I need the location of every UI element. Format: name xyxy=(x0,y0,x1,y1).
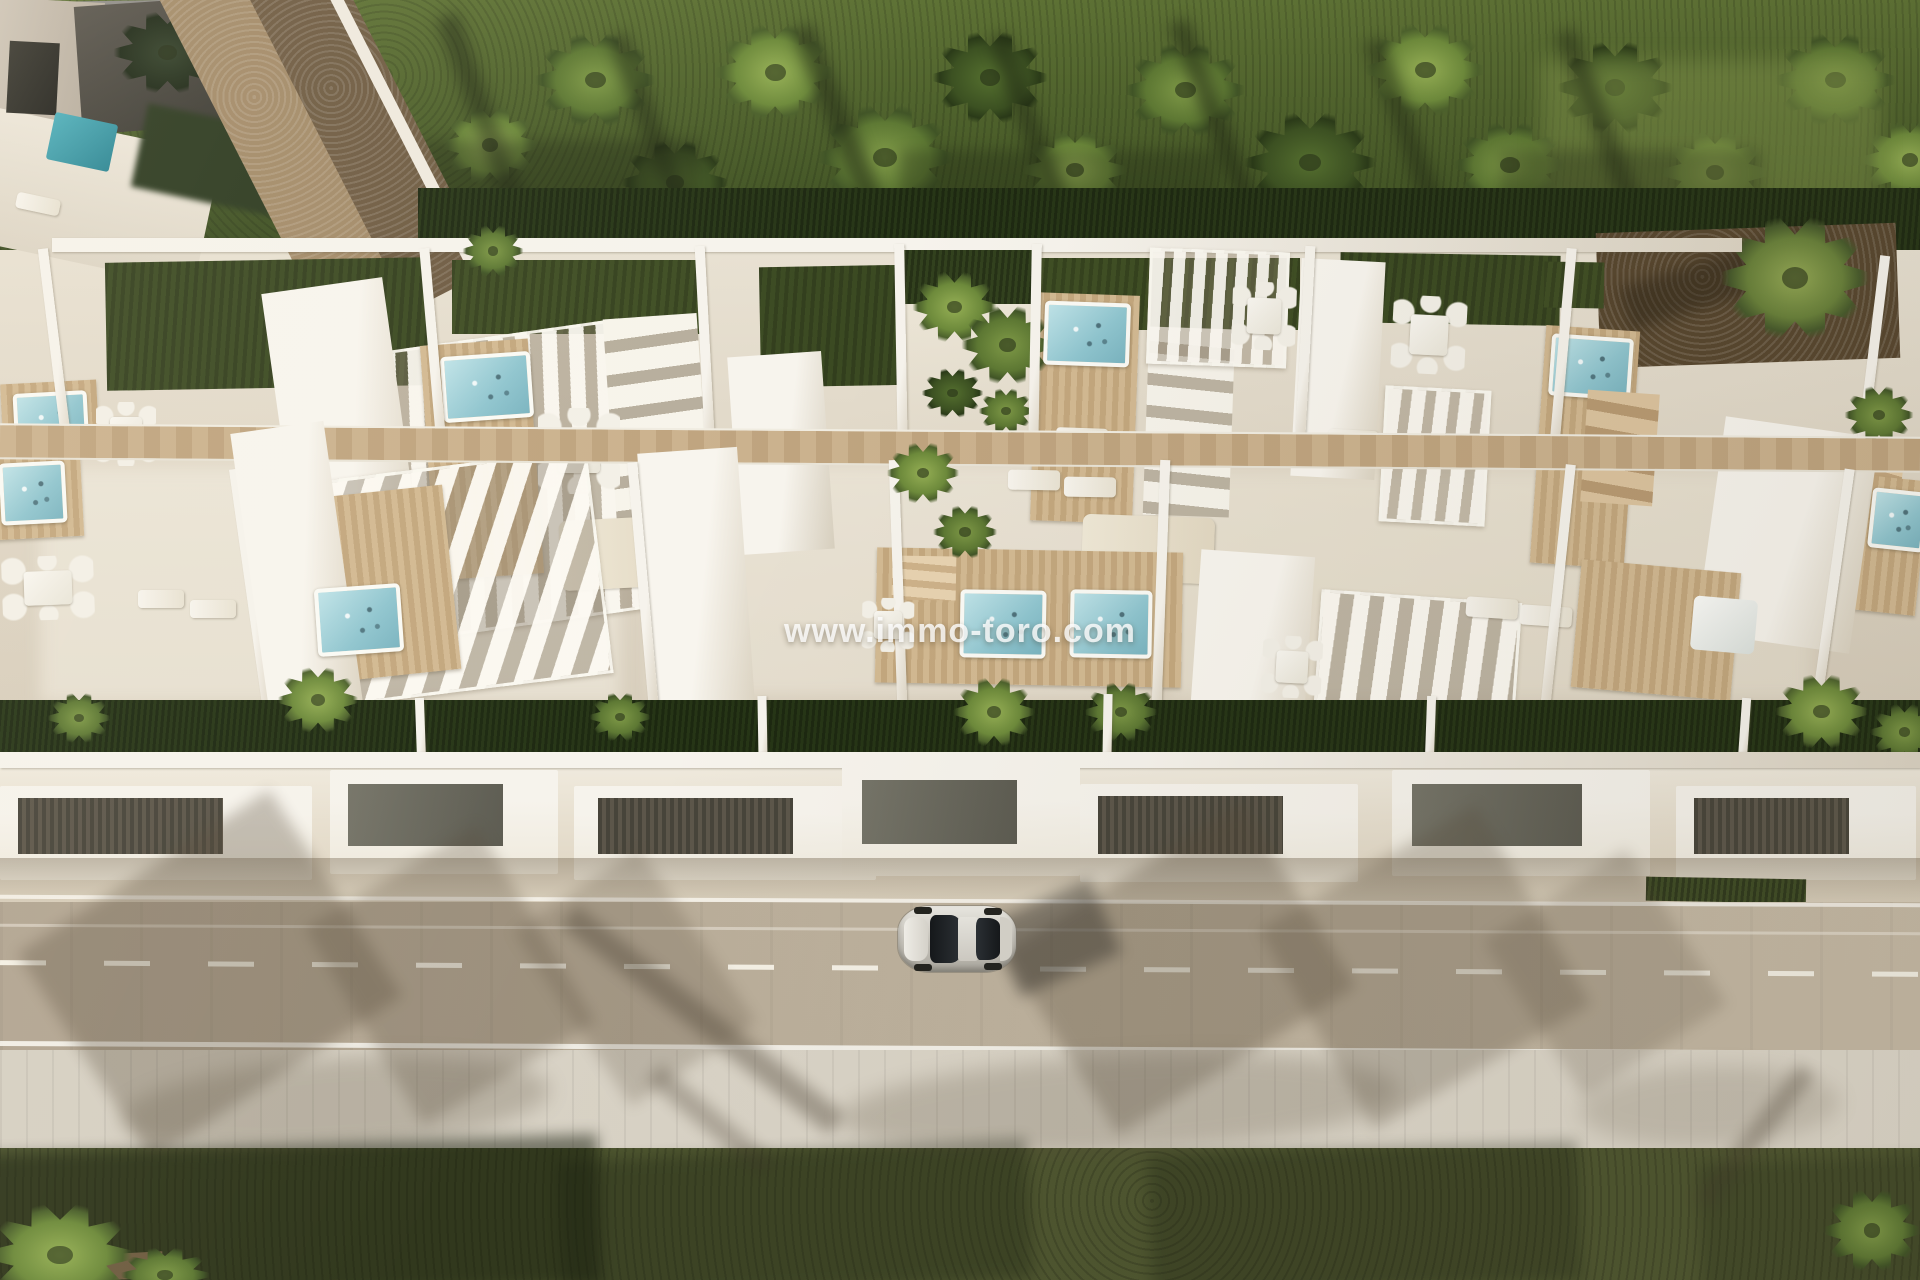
car-rear-glass xyxy=(976,918,1000,960)
balcony-window xyxy=(598,798,793,854)
balcony-window xyxy=(1694,798,1849,854)
car-hood xyxy=(904,917,928,961)
hedge-post xyxy=(1102,694,1112,760)
jacuzzi xyxy=(0,460,68,525)
sun-lounger xyxy=(138,590,184,608)
car-wheel xyxy=(984,908,1002,915)
car-tail xyxy=(1000,917,1012,961)
aerial-development-render: www.immo-toro.com xyxy=(0,0,1920,1280)
car-windshield xyxy=(930,915,960,963)
car-roof xyxy=(958,917,978,961)
hedge-post xyxy=(757,696,767,760)
balcony-window xyxy=(862,780,1017,844)
dining-set xyxy=(1390,294,1468,376)
car-wheel xyxy=(914,964,932,971)
jacuzzi xyxy=(440,351,534,423)
sun-lounger xyxy=(1008,470,1060,491)
jacuzzi xyxy=(1043,301,1131,368)
jacuzzi xyxy=(1867,487,1920,553)
car-wheel xyxy=(914,907,932,914)
street-planter-hedge xyxy=(1646,877,1806,904)
car-wheel xyxy=(984,963,1002,970)
neighbor-window xyxy=(6,41,60,116)
sun-lounger xyxy=(1064,477,1116,498)
grass-shadow xyxy=(1148,1141,1583,1280)
silver-sports-car xyxy=(898,906,1016,972)
watermark: www.immo-toro.com xyxy=(0,612,1920,651)
grass-shadow xyxy=(557,1138,1034,1280)
dining-set xyxy=(1231,281,1297,351)
